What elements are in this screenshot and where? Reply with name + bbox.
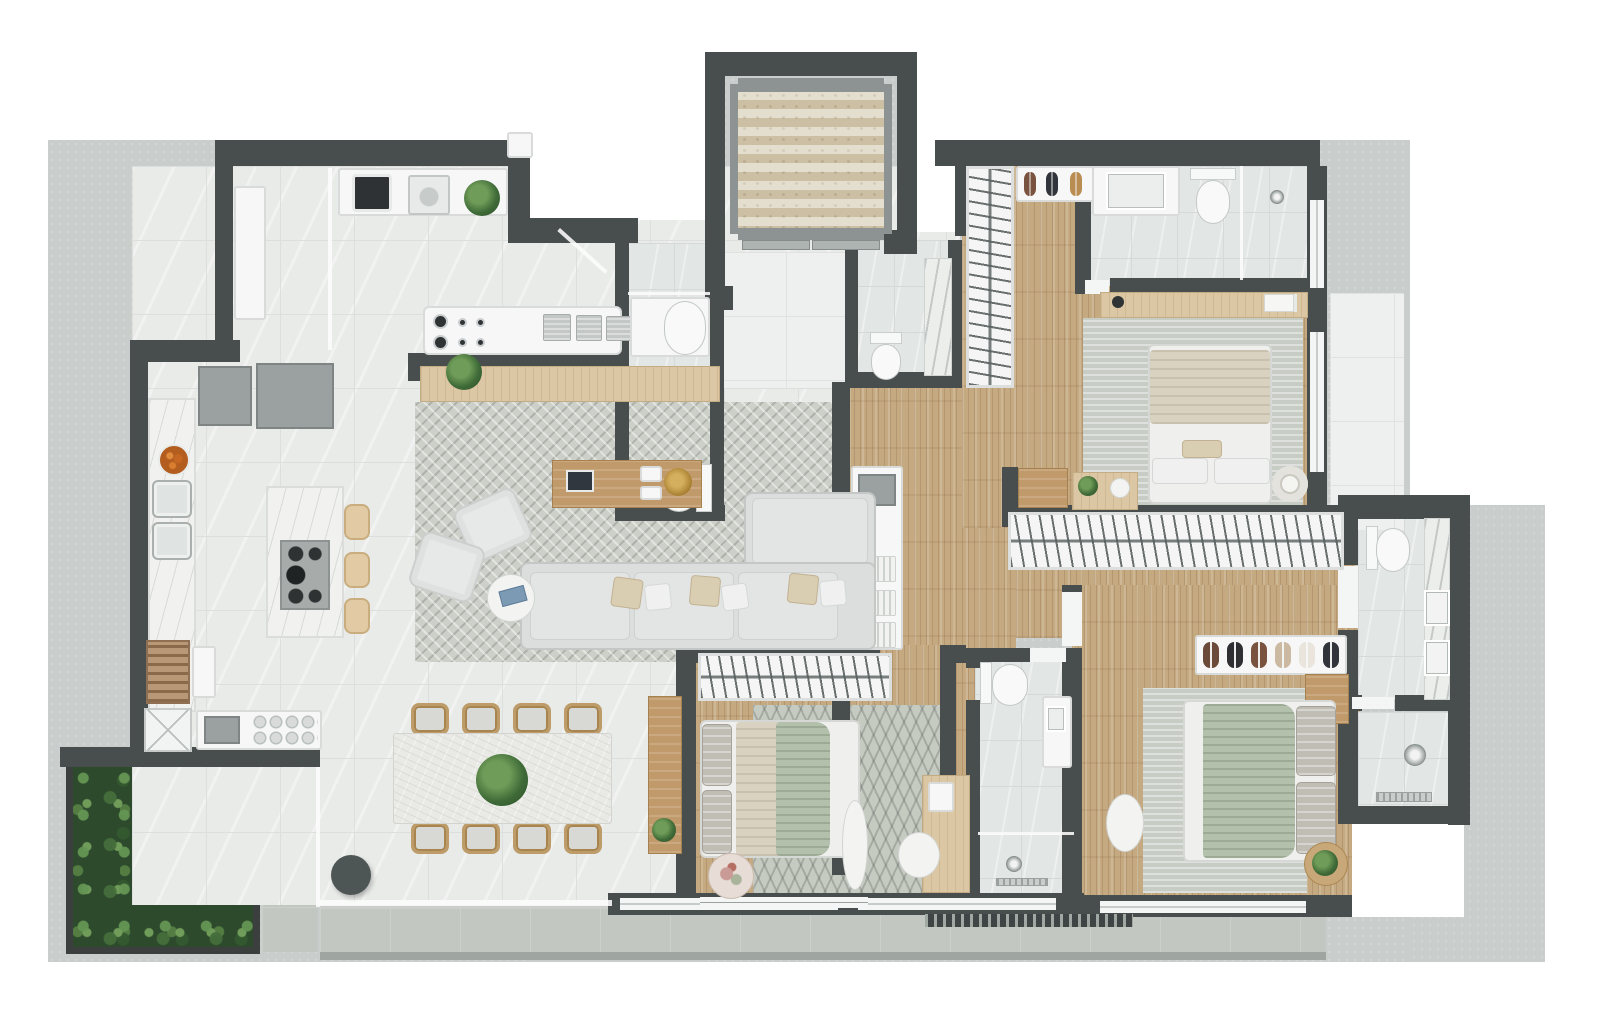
- door-sill: [1338, 566, 1358, 628]
- pillow: [689, 575, 722, 608]
- shoes: [1024, 172, 1036, 196]
- wall: [1338, 806, 1470, 824]
- dining-chair: [564, 822, 602, 854]
- wine-rack: [146, 640, 190, 704]
- elevator-frame: [738, 78, 884, 92]
- bar-stool: [344, 504, 370, 540]
- bench: [842, 800, 868, 890]
- dining-chair: [564, 703, 602, 735]
- plant: [652, 818, 676, 842]
- pouf: [331, 855, 371, 895]
- floor-plan: [0, 0, 1600, 1029]
- desk-chair: [898, 832, 940, 878]
- dining-chair: [411, 703, 449, 735]
- pillow: [1296, 706, 1336, 776]
- plant: [464, 180, 500, 216]
- elevator-wall: [705, 52, 725, 310]
- door-sill: [1352, 697, 1394, 709]
- shoes: [1070, 172, 1082, 196]
- void: [527, 138, 705, 220]
- plant: [1078, 476, 1098, 496]
- sink-basin: [1424, 640, 1450, 676]
- bar-stool: [344, 552, 370, 588]
- fruit-bowl: [158, 444, 190, 476]
- books: [1264, 294, 1294, 312]
- burner-knob: [476, 338, 485, 347]
- louver-vent: [925, 914, 1133, 927]
- shower-glass: [978, 832, 1074, 835]
- elevator-rail: [884, 84, 892, 234]
- sink-basin: [664, 301, 706, 355]
- book: [566, 470, 594, 492]
- toilet: [992, 664, 1028, 706]
- window: [858, 898, 1056, 910]
- toilet: [1376, 528, 1410, 572]
- wall: [1448, 495, 1470, 825]
- sofa-cushion: [752, 498, 868, 564]
- dining-chair: [462, 822, 500, 854]
- cooktop: [280, 540, 330, 610]
- window: [700, 897, 868, 908]
- dish: [1110, 478, 1130, 498]
- marble-panel: [924, 258, 952, 376]
- closet-unit: [1008, 512, 1344, 570]
- kitchen-sink: [152, 480, 192, 518]
- wall: [215, 140, 530, 166]
- sink-basin: [1046, 706, 1066, 732]
- shoes: [1046, 172, 1058, 196]
- dining-chair: [513, 822, 551, 854]
- pillow: [610, 576, 644, 610]
- wall: [966, 648, 1040, 662]
- window: [1310, 200, 1324, 288]
- shower-glass: [628, 292, 710, 295]
- shoes: [1323, 642, 1339, 668]
- dresser: [1018, 468, 1068, 508]
- burner-knob: [476, 318, 485, 327]
- kitchen-sink: [152, 522, 192, 560]
- wall: [1062, 648, 1082, 905]
- master-blanket: [1203, 704, 1295, 858]
- shower-head: [1006, 856, 1022, 872]
- cups: [252, 714, 318, 746]
- pillow: [1182, 440, 1222, 458]
- elevator-door: [812, 240, 880, 250]
- laundry-sink: [352, 174, 392, 212]
- wall: [940, 645, 966, 663]
- tray: [640, 466, 662, 482]
- flower-plate: [708, 853, 754, 899]
- toilet: [871, 344, 901, 380]
- door-sill: [1062, 592, 1082, 646]
- terrace-glass: [320, 900, 612, 906]
- oven-cabinet: [256, 363, 334, 429]
- toilet: [1196, 180, 1230, 224]
- burner-knob: [458, 318, 467, 327]
- washing-machine: [408, 175, 450, 215]
- balcony-edge: [320, 952, 1326, 960]
- centerpiece-plant: [476, 754, 528, 806]
- closet-rack: [966, 166, 1014, 388]
- shower-head: [1270, 190, 1284, 204]
- terrace-glass: [316, 767, 320, 907]
- service-shaft: [144, 708, 192, 752]
- pillow: [720, 582, 749, 611]
- elevator-wall: [705, 52, 917, 76]
- sink-basin: [1106, 172, 1166, 210]
- wall: [935, 140, 1320, 166]
- elevator-wall: [897, 52, 917, 252]
- shower-head: [1404, 744, 1426, 766]
- shoes: [1203, 642, 1219, 668]
- toilet-tank: [1190, 168, 1236, 180]
- foyer-floor: [722, 252, 848, 388]
- towel: [606, 316, 631, 341]
- desk-lamp: [1112, 296, 1124, 308]
- burner-knob: [458, 338, 467, 347]
- shoes: [1251, 642, 1267, 668]
- wall: [832, 382, 850, 460]
- door-sill: [1030, 648, 1066, 662]
- plant: [1312, 850, 1338, 876]
- dining-chair: [513, 703, 551, 735]
- closet-unit: [698, 653, 892, 701]
- espresso-machine: [204, 716, 240, 744]
- burner-knob: [433, 335, 448, 350]
- hat: [1272, 466, 1308, 502]
- wall: [845, 240, 858, 388]
- elevator-rail: [730, 84, 738, 234]
- elevator-floor: [738, 90, 884, 235]
- towel: [576, 315, 602, 341]
- bed3-throw: [776, 722, 830, 856]
- refrigerator: [198, 366, 252, 426]
- water-heater: [507, 132, 533, 158]
- wall: [215, 140, 233, 345]
- plant: [446, 354, 482, 390]
- bar-stool: [344, 598, 370, 634]
- shower-drain: [996, 878, 1048, 886]
- bed1-blanket: [1150, 350, 1270, 424]
- towel: [543, 314, 571, 341]
- shower-glass: [1240, 166, 1243, 280]
- pillow: [1152, 458, 1208, 484]
- pillow: [644, 583, 673, 612]
- elevator-door-track: [738, 228, 884, 240]
- shoes: [1299, 642, 1315, 668]
- device: [928, 782, 954, 812]
- tray: [640, 486, 662, 500]
- shelf: [192, 646, 216, 698]
- toilet-tank: [870, 332, 902, 344]
- elevator-door: [742, 240, 810, 250]
- gold-bowl: [664, 468, 692, 496]
- tall-cabinet: [234, 186, 266, 320]
- toilet-tank: [980, 662, 992, 704]
- pillow: [787, 573, 820, 606]
- shoes: [1227, 642, 1243, 668]
- glass-partition: [328, 168, 332, 350]
- dining-chair: [462, 703, 500, 735]
- sink-basin: [1424, 590, 1450, 626]
- dining-chair: [411, 822, 449, 854]
- void: [1352, 824, 1464, 917]
- pillow: [1214, 458, 1270, 484]
- bench: [1106, 794, 1144, 852]
- burner-knob: [433, 314, 448, 329]
- shoes: [1275, 642, 1291, 668]
- pillow: [819, 579, 847, 607]
- window: [1100, 901, 1306, 913]
- shower-drain: [1376, 792, 1432, 802]
- pillow: [702, 724, 732, 786]
- window: [1310, 332, 1324, 472]
- pillow: [702, 790, 732, 854]
